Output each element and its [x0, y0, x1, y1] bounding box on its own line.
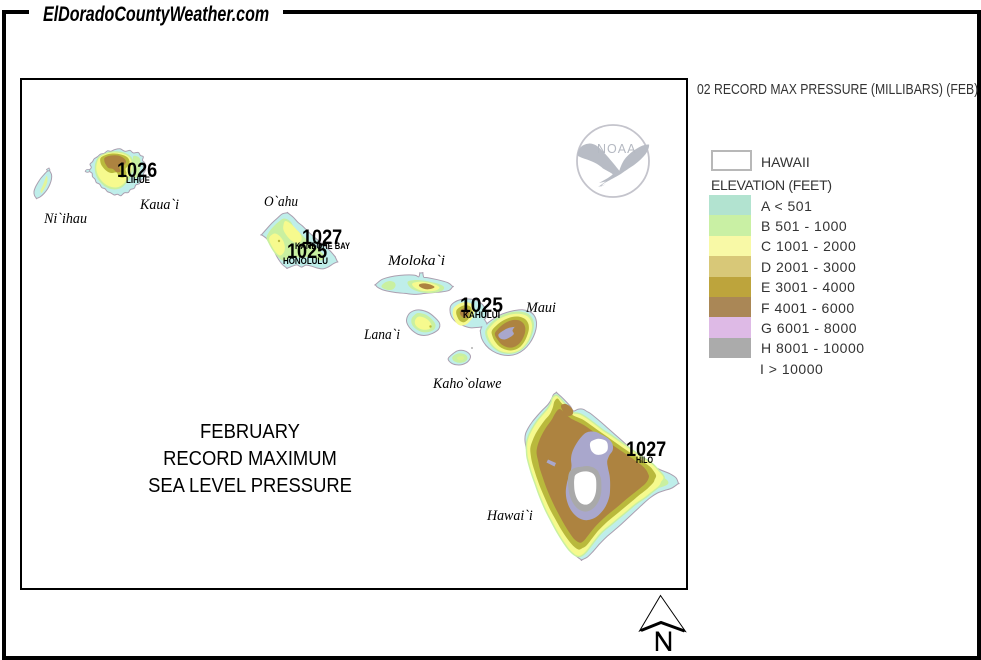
svg-text:NOAA: NOAA — [597, 142, 636, 156]
